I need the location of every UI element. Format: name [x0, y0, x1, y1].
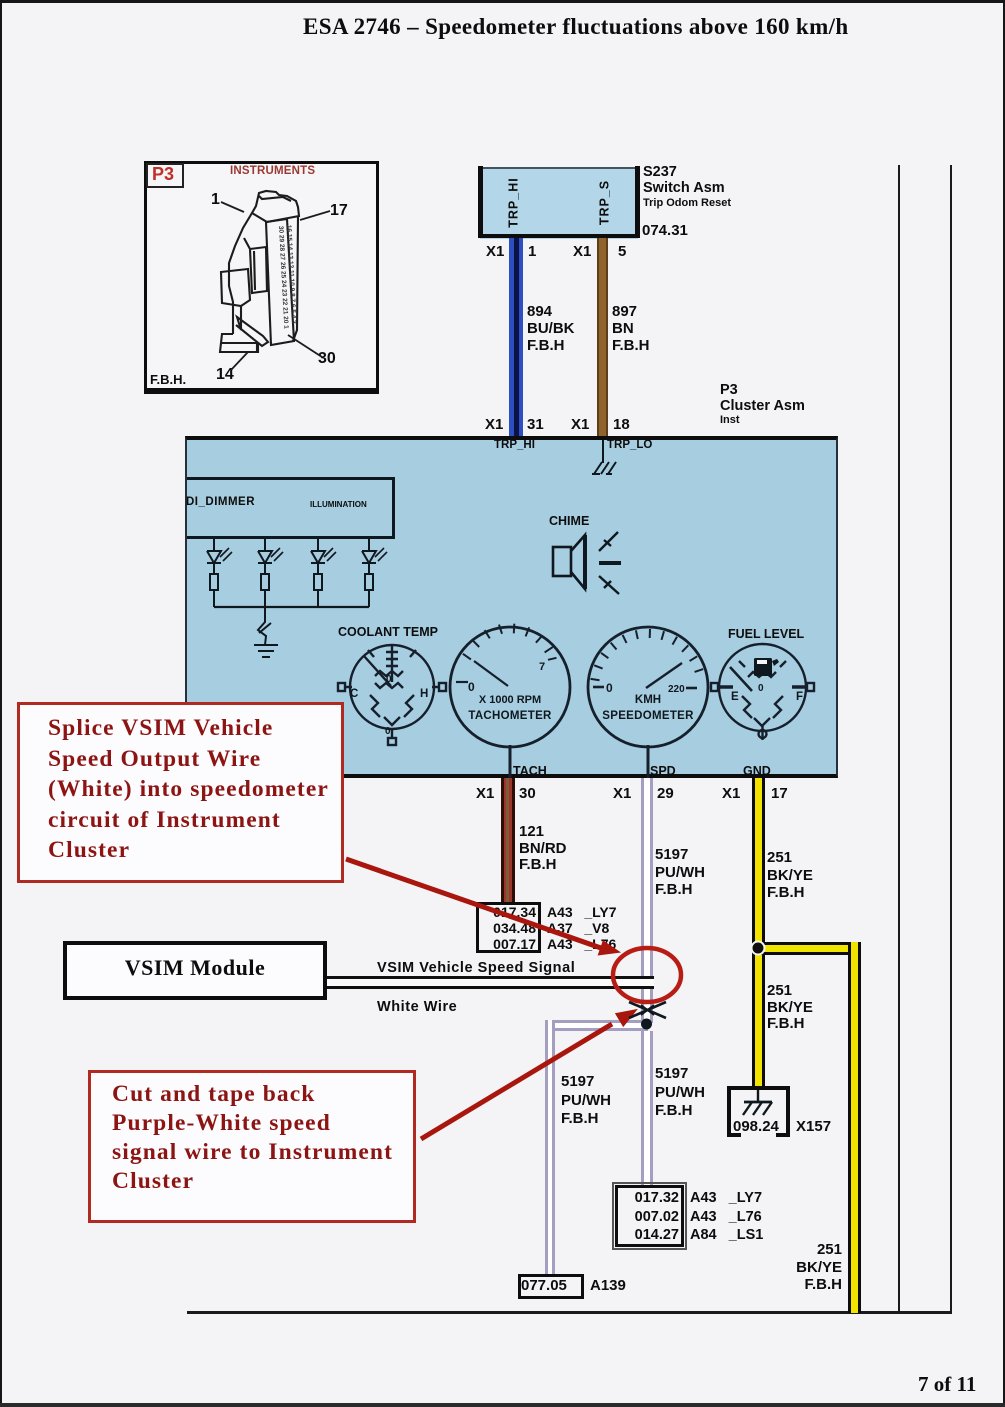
svg-text:0: 0 [606, 681, 613, 695]
svg-text:KMH: KMH [635, 694, 661, 706]
svg-text:0: 0 [385, 726, 391, 737]
svg-text:X 1000 RPM: X 1000 RPM [479, 694, 541, 706]
svg-text:220: 220 [668, 684, 685, 695]
svg-text:0: 0 [758, 683, 764, 694]
svg-text:TACHOMETER: TACHOMETER [468, 710, 552, 722]
svg-text:C: C [350, 688, 358, 700]
svg-text:H: H [420, 688, 428, 700]
svg-text:0: 0 [468, 680, 475, 694]
svg-text:7: 7 [539, 661, 545, 673]
svg-text:SPEEDOMETER: SPEEDOMETER [602, 710, 694, 722]
svg-text:E: E [731, 691, 739, 703]
svg-text:F: F [796, 691, 803, 703]
svg-text:0: 0 [386, 674, 392, 685]
